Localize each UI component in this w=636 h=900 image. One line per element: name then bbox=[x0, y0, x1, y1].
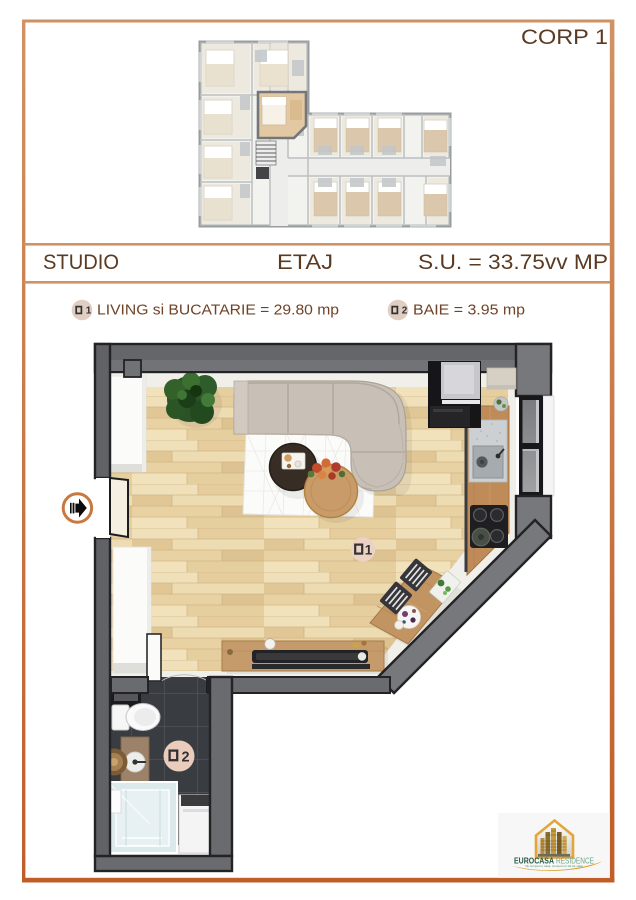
svg-text:Nu cumperi o casa, cumperi un: Nu cumperi o casa, cumperi un stil de vi… bbox=[525, 864, 583, 868]
svg-text:1: 1 bbox=[365, 543, 373, 558]
svg-text:1: 1 bbox=[86, 306, 92, 317]
svg-text:BAIE = 3.95 mp: BAIE = 3.95 mp bbox=[413, 302, 525, 319]
svg-text:2: 2 bbox=[181, 750, 189, 766]
svg-text:ETAJ: ETAJ bbox=[277, 250, 333, 274]
svg-text:STUDIO: STUDIO bbox=[43, 250, 119, 274]
svg-text:CORP 1: CORP 1 bbox=[521, 25, 608, 49]
svg-text:2: 2 bbox=[402, 306, 408, 317]
svg-text:LIVING si BUCATARIE = 29.80 mp: LIVING si BUCATARIE = 29.80 mp bbox=[97, 302, 339, 319]
svg-text:S.U. = 33.75vv MP: S.U. = 33.75vv MP bbox=[418, 250, 608, 274]
